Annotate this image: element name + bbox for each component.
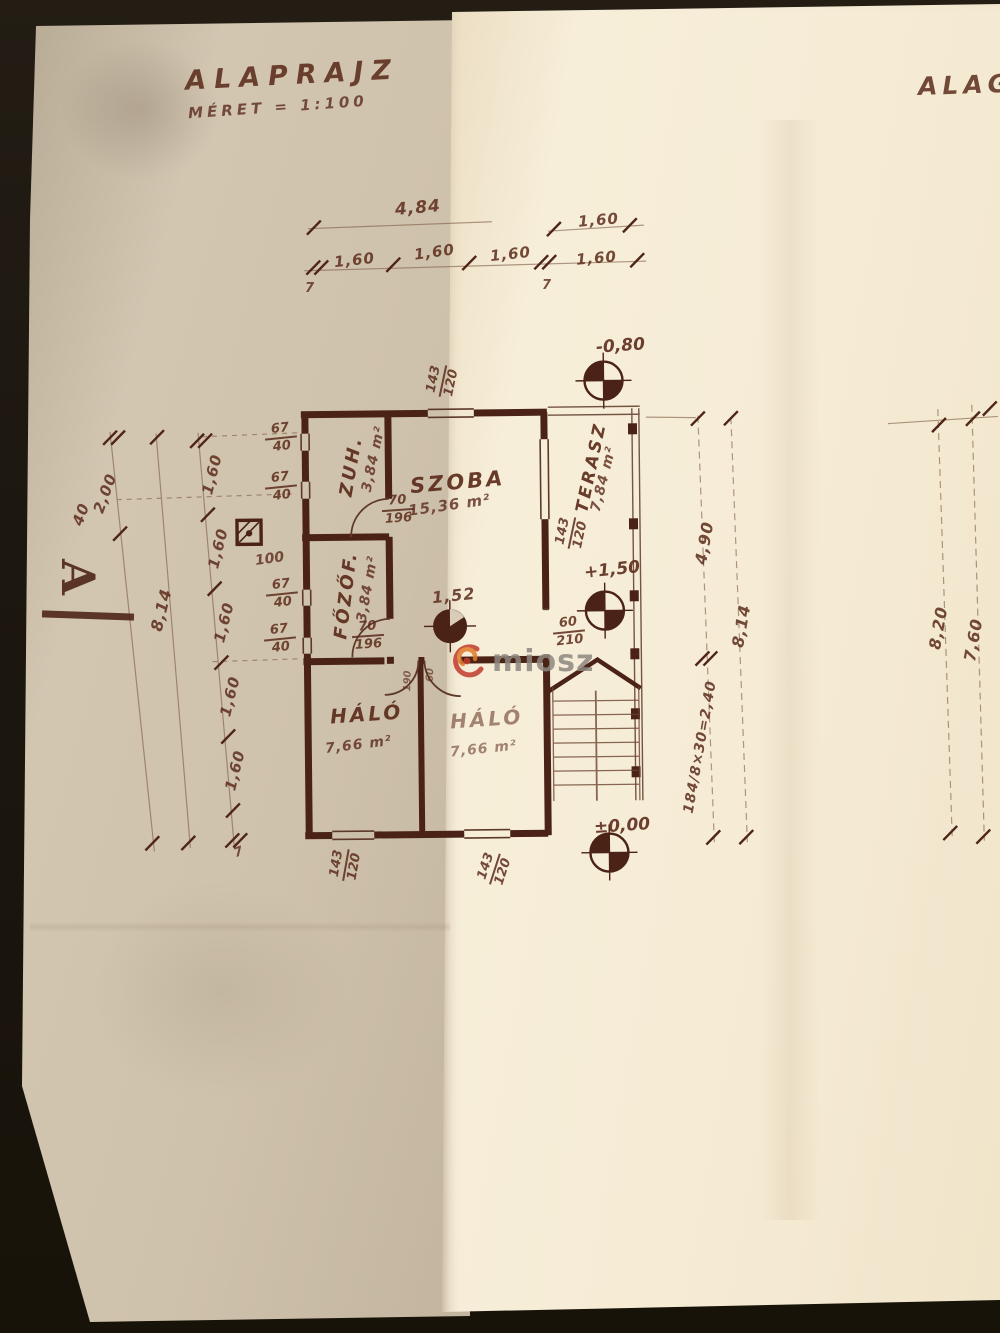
- window-dim-height: 40: [273, 595, 292, 611]
- window-dim-large: 143 120: [327, 847, 364, 884]
- level-marker-icon: [577, 582, 634, 639]
- door-dim-height: 196: [385, 511, 413, 527]
- level-marker-icon: [575, 352, 632, 409]
- window-dim-large: 143 120: [424, 362, 462, 400]
- chimney-symbol: [237, 520, 261, 544]
- level-value-ground: ±0,00: [593, 816, 650, 837]
- window-dim-width: 67: [270, 470, 289, 486]
- watermark-text: miosz: [492, 644, 594, 679]
- window-dim-width: 67: [270, 421, 289, 437]
- door-dim-width: 70: [388, 493, 407, 509]
- miosz-logo-icon: [446, 640, 488, 682]
- window-dim: 67 40: [263, 469, 298, 504]
- photographed-floorplan: ALAPRAJZ MÉRET = 1:100 ALAGS A ZUH. 3,84…: [0, 0, 1000, 1333]
- dim-seg: 1,60: [575, 249, 617, 268]
- door-dim-width: 70: [358, 619, 377, 635]
- dim-seg: 1,60: [333, 251, 375, 270]
- door-dim: 70 196: [351, 619, 385, 653]
- corner-title: ALAGS: [918, 70, 1000, 99]
- dim-hundred: 100: [254, 550, 285, 568]
- room-label-halo-2: HÁLÓ: [449, 706, 523, 731]
- window-dim: 67 40: [263, 420, 298, 455]
- window-dim-height: 40: [272, 488, 291, 504]
- window-dim: 67 40: [264, 576, 299, 611]
- door-dim: 70 196: [381, 493, 415, 527]
- window-dim-width: 67: [271, 577, 290, 593]
- dim-seg: 1,60: [489, 245, 531, 264]
- dim-seven: 7: [305, 282, 314, 295]
- dim-seg: 1,60: [577, 211, 619, 230]
- window-dim-large: 143 120: [553, 514, 591, 552]
- section-marker-letter: A: [51, 559, 105, 595]
- dim-total-top: 4,84: [394, 198, 441, 219]
- window-dim-width: 67: [269, 622, 288, 638]
- dim-tiny-60: 60: [426, 668, 436, 682]
- watermark: miosz: [446, 640, 594, 682]
- room-label-halo-1: HÁLÓ: [329, 701, 403, 726]
- window-dim-height: 40: [272, 439, 291, 455]
- door-dim-height: 196: [355, 637, 383, 653]
- dim-seven: 7: [542, 279, 551, 292]
- door-dim-width: 60: [558, 615, 577, 631]
- level-value-basement: -0,80: [595, 336, 645, 356]
- dim-152: 1,52: [431, 586, 476, 606]
- window-dim: 67 40: [262, 621, 297, 656]
- window-dim-height: 40: [271, 640, 290, 656]
- dim-tiny-190: 190: [403, 670, 414, 691]
